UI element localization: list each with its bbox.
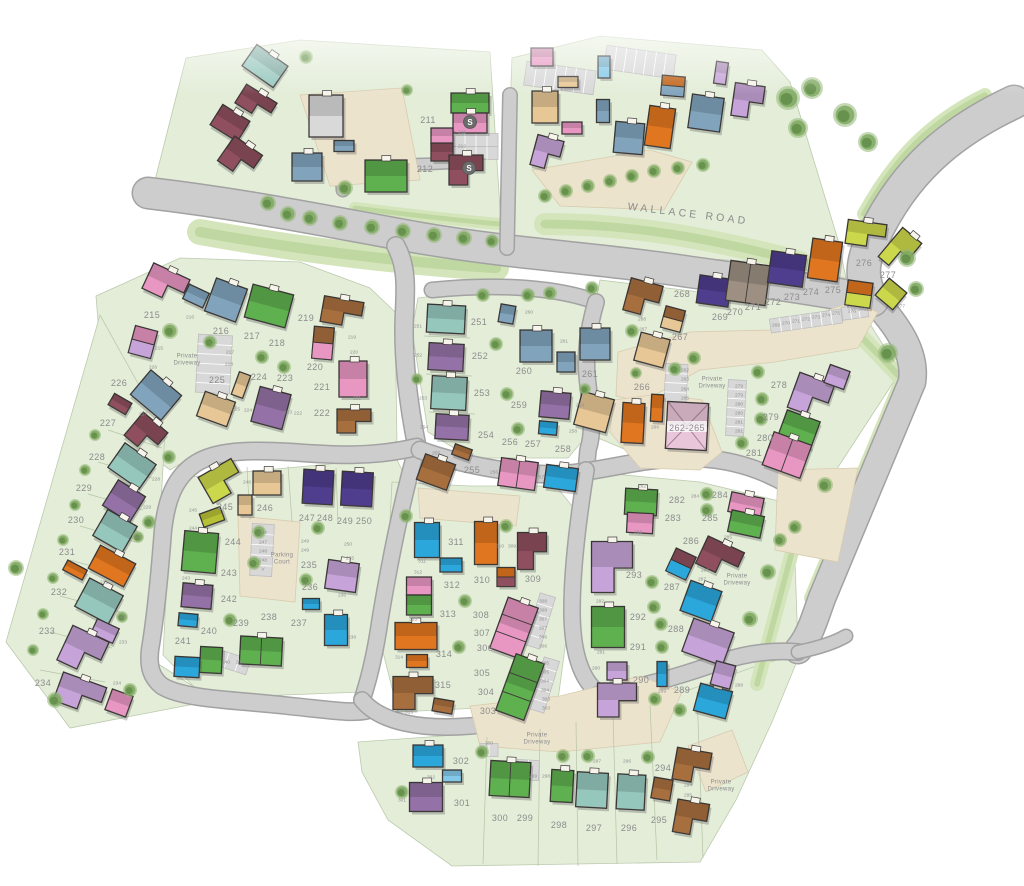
bay-label: 305 <box>541 661 549 667</box>
tree <box>788 118 808 138</box>
plot-label: 224 <box>251 372 267 382</box>
plot-label: 243 <box>221 568 237 578</box>
plot-label: 228 <box>89 452 105 462</box>
tree <box>559 184 573 198</box>
plot-label: 238 <box>261 612 277 622</box>
bay-label: 308 <box>539 608 547 614</box>
bay-label: 267 <box>639 327 647 333</box>
bay-label: 216 <box>186 315 194 321</box>
house <box>415 518 443 561</box>
tree <box>647 600 661 614</box>
bay-label: 244 <box>189 526 197 532</box>
tree <box>641 750 655 764</box>
plot-label: 275 <box>825 285 841 295</box>
bay-label: 228 <box>152 477 160 483</box>
tree <box>543 286 557 300</box>
tree <box>395 223 411 239</box>
bay-label: 295 <box>684 793 692 799</box>
house <box>302 465 337 508</box>
tree <box>395 785 409 799</box>
house <box>365 156 410 196</box>
tree <box>773 533 787 547</box>
tree <box>673 703 687 717</box>
house <box>309 91 346 141</box>
bay-label: 249 <box>301 548 309 554</box>
tree <box>302 210 318 226</box>
house <box>475 517 501 568</box>
tree <box>538 189 552 203</box>
plot-label: 247 <box>299 513 315 523</box>
tree <box>499 519 513 533</box>
bay-label: 310 <box>496 544 504 550</box>
site-plan: 2112122152162172182192202212222232242252… <box>0 0 1024 886</box>
bay-label: 290 <box>592 666 600 672</box>
plot-label: 252 <box>472 351 488 361</box>
tree <box>671 161 685 175</box>
tree <box>485 234 499 248</box>
plot-label: 233 <box>39 626 55 636</box>
tree <box>760 564 776 580</box>
tree <box>142 515 156 529</box>
bay-label: 280 <box>735 411 743 417</box>
bay-label: 219 <box>348 335 356 341</box>
plot-label: 288 <box>668 624 684 634</box>
bay-label: 254 <box>420 425 428 431</box>
bay-label: 260 <box>525 310 533 316</box>
bay-label: 308 <box>539 599 547 605</box>
plot-label: 221 <box>314 382 330 392</box>
svg-text:Driveway: Driveway <box>707 787 734 793</box>
bay-label: 271 <box>792 319 800 325</box>
tree <box>755 392 769 406</box>
bay-label: 297 <box>593 759 601 765</box>
svg-text:Parking: Parking <box>271 552 293 558</box>
tree <box>696 158 710 172</box>
tree <box>668 362 682 376</box>
tree <box>27 644 39 656</box>
house <box>657 662 670 690</box>
house <box>334 141 357 155</box>
house <box>407 655 431 671</box>
plot-label: 272 <box>765 297 781 307</box>
house <box>580 324 613 364</box>
house <box>340 467 376 510</box>
tree <box>456 230 472 246</box>
plot-label: 262-265 <box>669 423 705 433</box>
plot-label: 251 <box>471 317 487 327</box>
house <box>520 326 555 366</box>
bay-label: 270 <box>782 321 790 327</box>
plot-label: 234 <box>35 678 51 688</box>
bay-label: 281 <box>735 429 743 435</box>
tree <box>411 373 423 385</box>
plot-label: 211 <box>420 115 436 125</box>
bay-label: 257 <box>536 475 544 481</box>
tree <box>476 288 490 302</box>
plot-label: 315 <box>435 680 451 690</box>
bay-label: 296 <box>623 759 631 765</box>
bay-label: 279 <box>735 393 743 399</box>
plot-label: 223 <box>277 373 293 383</box>
bay-label: 256 <box>490 470 498 476</box>
bay-label: 291 <box>597 650 605 656</box>
house <box>497 568 518 590</box>
plot-label: 237 <box>291 618 307 628</box>
bay-label: 238 <box>348 635 356 641</box>
house <box>431 371 471 413</box>
bay-label: 264 <box>681 387 689 393</box>
plot-label: 283 <box>665 513 681 523</box>
house <box>557 352 578 375</box>
tree <box>489 337 503 351</box>
house <box>174 656 203 680</box>
bay-label: 292 <box>596 599 604 605</box>
tree <box>458 594 472 608</box>
tree <box>337 180 353 196</box>
bay-label: 231 <box>100 580 108 586</box>
bay-label: 248 <box>259 549 267 555</box>
plot-label: 230 <box>68 515 84 525</box>
plot-label: 255 <box>464 465 480 475</box>
tree <box>687 351 701 365</box>
tree <box>57 534 69 546</box>
house <box>178 613 201 631</box>
plot-label: 289 <box>674 685 690 695</box>
tree <box>399 509 413 523</box>
plot-label: 253 <box>474 388 490 398</box>
bay-label: 275 <box>832 311 840 317</box>
plot-label: 291 <box>630 642 646 652</box>
bay-label: 239 <box>236 660 244 666</box>
plot-label: 248 <box>317 513 333 523</box>
plot-label: 219 <box>298 313 314 323</box>
plot-label: 295 <box>651 815 667 825</box>
bay-label: 269 <box>772 323 780 329</box>
bay-label: 312 <box>414 570 422 576</box>
bay-label: 243 <box>182 576 190 582</box>
bay-label: 211 <box>458 130 466 136</box>
plot-label: 297 <box>586 823 602 833</box>
bay-label: 234 <box>113 681 121 687</box>
bay-label: 247 <box>259 540 267 546</box>
tree <box>89 429 101 441</box>
bay-label: 301 <box>398 798 406 804</box>
plot-label: 277 <box>880 270 896 280</box>
bay-label: 276 <box>848 309 856 315</box>
plot-label: 298 <box>551 820 567 830</box>
plot-label: 220 <box>307 362 323 372</box>
bay-label: 240 <box>222 660 230 666</box>
plot-label: 271 <box>745 302 761 312</box>
bay-label: 289 <box>658 689 666 695</box>
house <box>550 765 577 806</box>
bay-label: 279 <box>735 384 743 390</box>
plot-label: 246 <box>257 503 273 513</box>
tree <box>123 683 137 697</box>
tree <box>908 281 924 297</box>
plot-label: 290 <box>633 675 649 685</box>
bay-label: 232 <box>118 615 126 621</box>
bay-label: 303 <box>542 706 550 712</box>
tree <box>280 206 296 222</box>
tree <box>47 572 59 584</box>
plot-label: 300 <box>492 813 508 823</box>
plot-label: 287 <box>664 582 680 592</box>
tree <box>364 219 380 235</box>
house <box>489 756 534 801</box>
bay-label: 222 <box>294 411 302 417</box>
annotation-label: PrivateDriveway <box>698 376 725 389</box>
plot-label: 222 <box>314 408 330 418</box>
bay-label: 215 <box>155 346 163 352</box>
house <box>339 357 370 401</box>
house <box>616 769 649 813</box>
bay-label: 245 <box>189 508 197 514</box>
plot-label: 286 <box>683 536 699 546</box>
tree <box>511 422 525 436</box>
plot-label: 281 <box>746 448 762 458</box>
bay-label: 259 <box>576 403 584 409</box>
plot-label: 309 <box>525 574 541 584</box>
house <box>395 618 440 653</box>
bay-label: 236 <box>338 593 346 599</box>
svg-text:S: S <box>467 118 473 127</box>
bay-label: 250 <box>344 542 352 548</box>
house <box>303 599 323 613</box>
tree <box>647 164 661 178</box>
plot-label: 241 <box>175 636 191 646</box>
tree <box>69 499 81 511</box>
plot-label: 259 <box>511 400 527 410</box>
svg-text:Driveway: Driveway <box>698 384 725 390</box>
bay-label: 268 <box>638 317 646 323</box>
house <box>650 777 675 804</box>
tree <box>630 367 642 379</box>
house <box>498 304 519 328</box>
tree <box>311 521 325 535</box>
bay-label: 300 <box>485 741 493 747</box>
bay-label: 265 <box>681 396 689 402</box>
tree <box>500 387 514 401</box>
bay-label: 313 <box>409 617 417 623</box>
bay-label: 227 <box>139 412 147 418</box>
bay-label: 283 <box>634 530 642 536</box>
plot-label: 235 <box>301 560 317 570</box>
tree <box>645 575 659 589</box>
plot-label: 216 <box>213 326 229 336</box>
bay-label: 255 <box>432 451 440 457</box>
tree <box>37 608 49 620</box>
plot-label: 278 <box>771 380 787 390</box>
plot-label: 308 <box>473 610 489 620</box>
bay-label: 225 <box>232 407 240 413</box>
bay-label: 262 <box>681 368 689 374</box>
bay-label: 249 <box>301 539 309 545</box>
bay-label: 287 <box>698 577 706 583</box>
plot-label: 280 <box>757 433 773 443</box>
plot-label: 302 <box>453 756 469 766</box>
tree <box>585 281 599 295</box>
bay-label: 229 <box>143 505 151 511</box>
plot-label: 260 <box>516 366 532 376</box>
plot-label: 310 <box>474 575 490 585</box>
tree <box>817 477 833 493</box>
house <box>238 495 255 518</box>
bay-label: 248 <box>259 558 267 564</box>
bay-label: 281 <box>735 420 743 426</box>
plot-label: 306 <box>477 643 493 653</box>
plot-label: 244 <box>225 537 241 547</box>
bay-label: 247 <box>259 531 267 537</box>
plot-label: 212 <box>417 164 433 174</box>
plot-label: 269 <box>712 312 728 322</box>
tree <box>833 103 857 127</box>
plot-label: 270 <box>727 307 743 317</box>
bay-label: 233 <box>119 640 127 646</box>
bay-label: 314 <box>395 655 403 661</box>
tree <box>162 323 178 339</box>
house <box>253 467 284 499</box>
plot-label: 266 <box>634 382 650 392</box>
plot-label: 296 <box>621 823 637 833</box>
plot-label: 226 <box>111 378 127 388</box>
tree <box>579 383 591 395</box>
plot-label: 267 <box>672 332 688 342</box>
plot-label: 292 <box>630 612 646 622</box>
bay-label: 302 <box>427 775 435 781</box>
bay-label: 277 <box>897 304 905 310</box>
plot-label: 229 <box>76 483 92 493</box>
house <box>562 122 585 137</box>
plot-label: 304 <box>478 687 494 697</box>
bay-label: 299 <box>529 774 537 780</box>
plot-label: 268 <box>674 289 690 299</box>
house <box>592 602 628 651</box>
tree <box>475 745 489 759</box>
bay-label: 224 <box>244 408 252 414</box>
bay-label: 252 <box>414 353 422 359</box>
plot-label: 225 <box>209 375 225 385</box>
bay-label: 304 <box>541 688 549 694</box>
plot-label: 240 <box>201 626 217 636</box>
svg-text:Private: Private <box>727 573 748 579</box>
bay-label: 230 <box>134 535 142 541</box>
tree <box>898 249 916 267</box>
plot-label: 313 <box>440 609 456 619</box>
bay-label: 261 <box>560 339 568 345</box>
tree <box>260 195 276 211</box>
annotation-label: PrivateDriveway <box>173 353 200 366</box>
tree <box>625 169 639 183</box>
house <box>440 558 465 575</box>
svg-text:Driveway: Driveway <box>523 740 550 746</box>
house <box>538 421 560 439</box>
house <box>410 778 446 815</box>
svg-text:Private: Private <box>177 353 198 359</box>
plot-label: 254 <box>478 430 494 440</box>
annotation-label: PrivateDriveway <box>523 732 550 745</box>
plot-label: 299 <box>517 813 533 823</box>
tree <box>751 365 765 379</box>
bay-label: 253 <box>419 396 427 402</box>
tree <box>79 464 91 476</box>
bay-label: 263 <box>681 377 689 383</box>
bay-label: 307 <box>539 617 547 623</box>
house <box>311 326 336 363</box>
plot-label: 305 <box>474 668 490 678</box>
bay-label: 294 <box>684 783 692 789</box>
plot-label: 301 <box>454 798 470 808</box>
tree <box>203 335 217 349</box>
svg-text:Driveway: Driveway <box>173 361 200 367</box>
plot-label: 257 <box>525 439 541 449</box>
plot-label: 245 <box>217 502 233 512</box>
tree <box>277 360 291 374</box>
bay-label: 221 <box>353 396 361 402</box>
s-badge: S <box>464 116 477 129</box>
svg-text:Private: Private <box>527 732 548 738</box>
annotation-label: ParkingCourt <box>271 552 293 565</box>
bay-label: 258 <box>569 429 577 435</box>
bay-label: 223 <box>284 410 292 416</box>
plot-label: 231 <box>59 547 75 557</box>
top-fade <box>0 0 1024 95</box>
plot-label: 227 <box>100 418 116 428</box>
tree <box>332 215 348 231</box>
site-plan-svg: 2112122152162172182192202212222232242252… <box>0 0 1024 886</box>
house <box>597 100 613 126</box>
svg-text:S: S <box>466 164 472 173</box>
tree <box>581 179 595 193</box>
plot-label: 279 <box>763 412 779 422</box>
tree <box>878 343 898 363</box>
plot-label: 276 <box>856 258 872 268</box>
road <box>507 95 510 248</box>
bay-label: 285 <box>724 535 732 541</box>
plot-label: 273 <box>784 292 800 302</box>
plot-label: 261 <box>582 369 598 379</box>
bay-label: 315 <box>405 710 413 716</box>
plot-label: 217 <box>244 331 260 341</box>
house <box>650 394 666 425</box>
tree <box>858 132 878 152</box>
bay-label: 272 <box>802 317 810 323</box>
bay-label: 306 <box>539 644 547 650</box>
plot-label: 232 <box>51 587 67 597</box>
plot-label: 218 <box>269 338 285 348</box>
tree <box>521 288 535 302</box>
bay-label: 298 <box>542 774 550 780</box>
tree <box>742 611 758 627</box>
bay-label: 286 <box>701 568 709 574</box>
tree <box>625 324 639 338</box>
tree <box>47 692 63 708</box>
bay-label: 212 <box>458 144 466 150</box>
house <box>613 117 648 158</box>
tree <box>556 749 570 763</box>
svg-text:Private: Private <box>702 376 723 382</box>
plot-label: 311 <box>448 537 464 547</box>
bay-label: 226 <box>149 365 157 371</box>
tree <box>162 450 176 464</box>
plot-label: 314 <box>436 649 452 659</box>
bay-label: 303 <box>542 697 550 703</box>
plot-label: 215 <box>144 310 160 320</box>
house <box>575 767 611 811</box>
bay-label: 217 <box>226 350 234 356</box>
bay-label: 246 <box>243 480 251 486</box>
bay-label: 311 <box>418 559 426 565</box>
